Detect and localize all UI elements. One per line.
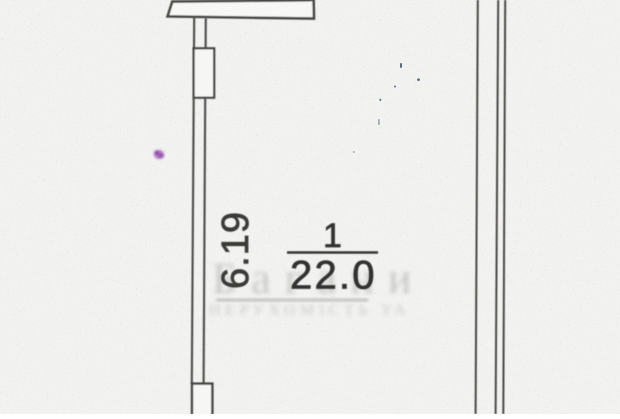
svg-text:22.0: 22.0 [290, 254, 377, 298]
svg-text:6.19: 6.19 [215, 211, 257, 289]
svg-text:1: 1 [323, 217, 342, 255]
svg-text:НЕРУХОМІСТЬ УА: НЕРУХОМІСТЬ УА [209, 302, 410, 319]
